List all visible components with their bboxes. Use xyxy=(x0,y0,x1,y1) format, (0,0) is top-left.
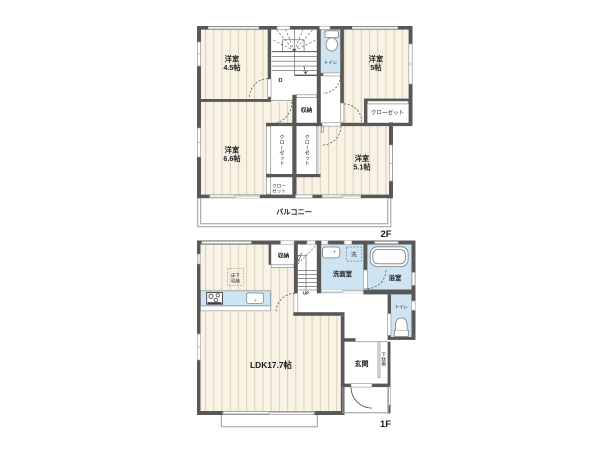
svg-text:トイレ: トイレ xyxy=(324,60,337,65)
svg-text:4.5帖: 4.5帖 xyxy=(223,63,241,72)
svg-text:収納: 収納 xyxy=(278,252,290,260)
svg-text:5帖: 5帖 xyxy=(370,63,382,72)
svg-text:D: D xyxy=(279,78,283,84)
svg-text:洗: 洗 xyxy=(351,251,357,259)
svg-text:収納: 収納 xyxy=(301,106,313,114)
svg-text:箱: 箱 xyxy=(381,361,386,368)
svg-text:クローゼット: クローゼット xyxy=(304,134,310,166)
svg-text:1F: 1F xyxy=(380,419,391,430)
svg-text:玄関: 玄関 xyxy=(355,359,369,368)
svg-text:LDK17.7帖: LDK17.7帖 xyxy=(250,360,293,370)
svg-text:2F: 2F xyxy=(380,229,391,240)
svg-text:収納: 収納 xyxy=(231,278,240,285)
svg-text:浴室: 浴室 xyxy=(389,273,402,282)
svg-text:6.6帖: 6.6帖 xyxy=(223,154,241,163)
svg-text:ゼット: ゼット xyxy=(272,188,286,194)
svg-text:バルコニー: バルコニー xyxy=(276,208,312,217)
svg-text:洗面室: 洗面室 xyxy=(333,269,353,278)
svg-text:トイレ: トイレ xyxy=(395,305,408,310)
svg-text:クローゼット: クローゼット xyxy=(371,109,405,117)
svg-text:UP: UP xyxy=(303,291,309,296)
svg-text:クローゼット: クローゼット xyxy=(279,134,285,166)
svg-text:5.1帖: 5.1帖 xyxy=(353,163,371,172)
